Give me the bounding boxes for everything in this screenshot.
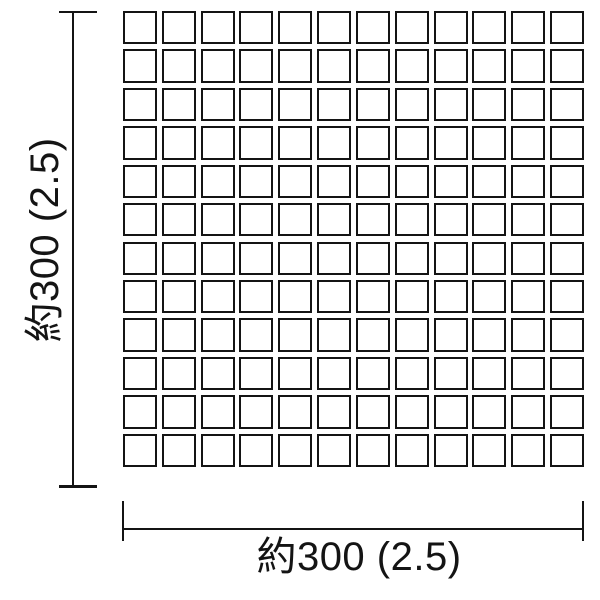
tile-cell: [162, 11, 196, 44]
tile-cell: [550, 395, 584, 428]
vertical-dimension-label: 約300 (2.5): [25, 137, 65, 342]
tile-cell: [239, 165, 273, 198]
tile-cell: [511, 242, 545, 275]
tile-cell: [434, 318, 468, 351]
tile-cell: [550, 88, 584, 121]
tile-cell: [317, 434, 351, 467]
tile-cell: [550, 357, 584, 390]
tile-cell: [550, 11, 584, 44]
tile-cell: [395, 395, 429, 428]
tile-cell: [434, 242, 468, 275]
tile-cell: [511, 88, 545, 121]
tile-cell: [201, 49, 235, 82]
tile-cell: [317, 49, 351, 82]
tile-cell: [239, 88, 273, 121]
tile-cell: [511, 318, 545, 351]
tile-cell: [395, 318, 429, 351]
tile-cell: [472, 88, 506, 121]
tile-cell: [162, 49, 196, 82]
tile-cell: [472, 318, 506, 351]
tile-cell: [356, 165, 390, 198]
tile-cell: [239, 49, 273, 82]
tile-cell: [123, 395, 157, 428]
tile-cell: [201, 242, 235, 275]
tile-cell: [278, 242, 312, 275]
tile-cell: [395, 203, 429, 236]
horizontal-dimension-label: 約300 (2.5): [256, 537, 461, 577]
tile-cell: [550, 49, 584, 82]
tile-cell: [162, 165, 196, 198]
tile-cell: [278, 49, 312, 82]
tile-cell: [434, 88, 468, 121]
tile-cell: [511, 126, 545, 159]
tile-cell: [123, 318, 157, 351]
tile-cell: [278, 11, 312, 44]
tile-cell: [239, 318, 273, 351]
tile-cell: [201, 434, 235, 467]
tile-cell: [239, 242, 273, 275]
vertical-dimension-tick-bottom: [59, 485, 97, 487]
tile-cell: [201, 88, 235, 121]
tile-cell: [395, 357, 429, 390]
tile-cell: [511, 395, 545, 428]
tile-cell: [511, 11, 545, 44]
tile-cell: [472, 126, 506, 159]
tile-cell: [511, 434, 545, 467]
tile-cell: [317, 318, 351, 351]
tile-cell: [511, 357, 545, 390]
tile-grid: [123, 11, 584, 467]
tile-cell: [278, 395, 312, 428]
tile-cell: [278, 318, 312, 351]
tile-cell: [123, 434, 157, 467]
tile-cell: [472, 395, 506, 428]
tile-cell: [278, 357, 312, 390]
tile-cell: [356, 242, 390, 275]
tile-cell: [278, 434, 312, 467]
tile-cell: [162, 242, 196, 275]
tile-cell: [472, 11, 506, 44]
tile-cell: [472, 434, 506, 467]
tile-cell: [434, 165, 468, 198]
tile-cell: [395, 280, 429, 313]
tile-cell: [162, 126, 196, 159]
tile-cell: [239, 203, 273, 236]
tile-cell: [278, 203, 312, 236]
tile-cell: [317, 165, 351, 198]
tile-cell: [511, 203, 545, 236]
tile-cell: [356, 395, 390, 428]
tile-cell: [434, 203, 468, 236]
tile-cell: [434, 395, 468, 428]
tile-cell: [356, 434, 390, 467]
tile-cell: [317, 357, 351, 390]
tile-cell: [472, 203, 506, 236]
tile-cell: [123, 165, 157, 198]
tile-cell: [239, 280, 273, 313]
tile-cell: [395, 126, 429, 159]
tile-cell: [550, 434, 584, 467]
tile-cell: [356, 203, 390, 236]
tile-cell: [356, 280, 390, 313]
tile-cell: [472, 49, 506, 82]
tile-cell: [472, 242, 506, 275]
tile-cell: [472, 165, 506, 198]
tile-cell: [511, 280, 545, 313]
tile-cell: [317, 280, 351, 313]
tile-cell: [162, 280, 196, 313]
tile-cell: [356, 318, 390, 351]
tile-cell: [317, 88, 351, 121]
tile-cell: [550, 165, 584, 198]
tile-cell: [434, 280, 468, 313]
tile-cell: [317, 11, 351, 44]
tile-cell: [356, 357, 390, 390]
tile-cell: [434, 434, 468, 467]
tile-cell: [201, 357, 235, 390]
tile-cell: [278, 280, 312, 313]
tile-cell: [123, 242, 157, 275]
horizontal-dimension-tick-right: [582, 501, 584, 541]
tile-cell: [201, 280, 235, 313]
tile-cell: [511, 165, 545, 198]
tile-cell: [162, 395, 196, 428]
tile-cell: [123, 126, 157, 159]
tile-cell: [395, 11, 429, 44]
tile-cell: [550, 280, 584, 313]
tile-cell: [201, 203, 235, 236]
tile-cell: [162, 88, 196, 121]
tile-cell: [550, 126, 584, 159]
tile-cell: [123, 49, 157, 82]
horizontal-dimension-line: [123, 528, 583, 530]
tile-cell: [278, 165, 312, 198]
tile-cell: [239, 126, 273, 159]
tile-cell: [511, 49, 545, 82]
tile-cell: [162, 434, 196, 467]
tile-cell: [201, 318, 235, 351]
tile-cell: [434, 126, 468, 159]
tile-cell: [356, 49, 390, 82]
tile-cell: [317, 395, 351, 428]
tile-cell: [434, 49, 468, 82]
tile-cell: [123, 280, 157, 313]
tile-cell: [395, 242, 429, 275]
vertical-dimension-line: [72, 11, 74, 487]
tile-cell: [395, 88, 429, 121]
tile-cell: [239, 357, 273, 390]
tile-cell: [278, 126, 312, 159]
tile-cell: [123, 203, 157, 236]
tile-cell: [162, 357, 196, 390]
tile-cell: [162, 318, 196, 351]
tile-cell: [239, 11, 273, 44]
tile-cell: [472, 280, 506, 313]
tile-cell: [123, 88, 157, 121]
tile-cell: [162, 203, 196, 236]
tile-cell: [201, 11, 235, 44]
tile-cell: [201, 126, 235, 159]
tile-cell: [395, 434, 429, 467]
tile-cell: [317, 242, 351, 275]
tile-cell: [472, 357, 506, 390]
tile-cell: [201, 165, 235, 198]
tile-cell: [239, 395, 273, 428]
tile-cell: [434, 357, 468, 390]
tile-cell: [550, 318, 584, 351]
tile-cell: [356, 126, 390, 159]
horizontal-dimension-tick-left: [122, 501, 124, 541]
tile-cell: [201, 395, 235, 428]
tile-cell: [123, 11, 157, 44]
tile-cell: [395, 165, 429, 198]
tile-cell: [550, 203, 584, 236]
tile-cell: [550, 242, 584, 275]
tile-cell: [123, 357, 157, 390]
tile-cell: [395, 49, 429, 82]
tile-spec-drawing: 約300 (2.5) 約300 (2.5): [0, 0, 600, 600]
tile-cell: [317, 126, 351, 159]
tile-cell: [239, 434, 273, 467]
tile-cell: [434, 11, 468, 44]
tile-cell: [278, 88, 312, 121]
vertical-dimension-tick-top: [59, 11, 97, 13]
tile-cell: [317, 203, 351, 236]
tile-cell: [356, 88, 390, 121]
tile-cell: [356, 11, 390, 44]
